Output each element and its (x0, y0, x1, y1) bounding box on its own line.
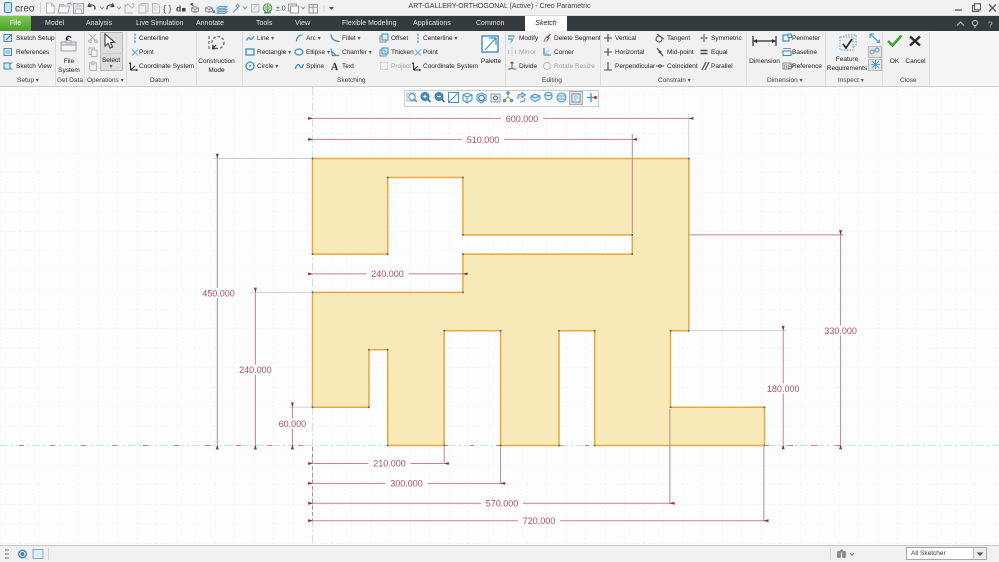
svg-text:±.0: ±.0 (276, 6, 286, 13)
svg-text:180.000: 180.000 (767, 384, 800, 394)
svg-text:60.000: 60.000 (279, 419, 307, 429)
svg-text:d: d (176, 4, 181, 14)
svg-text:240.000: 240.000 (239, 365, 272, 375)
svg-text:720.000: 720.000 (523, 516, 556, 526)
svg-text:510.000: 510.000 (467, 135, 500, 145)
svg-text:450.000: 450.000 (202, 288, 235, 298)
svg-text:240.000: 240.000 (371, 269, 404, 279)
svg-text:300.000: 300.000 (390, 478, 423, 488)
svg-text:?: ? (988, 20, 993, 30)
svg-text:210.000: 210.000 (373, 458, 406, 468)
svg-text:600.000: 600.000 (506, 114, 539, 124)
svg-text:A: A (331, 62, 339, 73)
svg-text:{ }: { } (163, 4, 172, 14)
svg-text:330.000: 330.000 (824, 326, 857, 336)
svg-text:570.000: 570.000 (486, 498, 519, 508)
